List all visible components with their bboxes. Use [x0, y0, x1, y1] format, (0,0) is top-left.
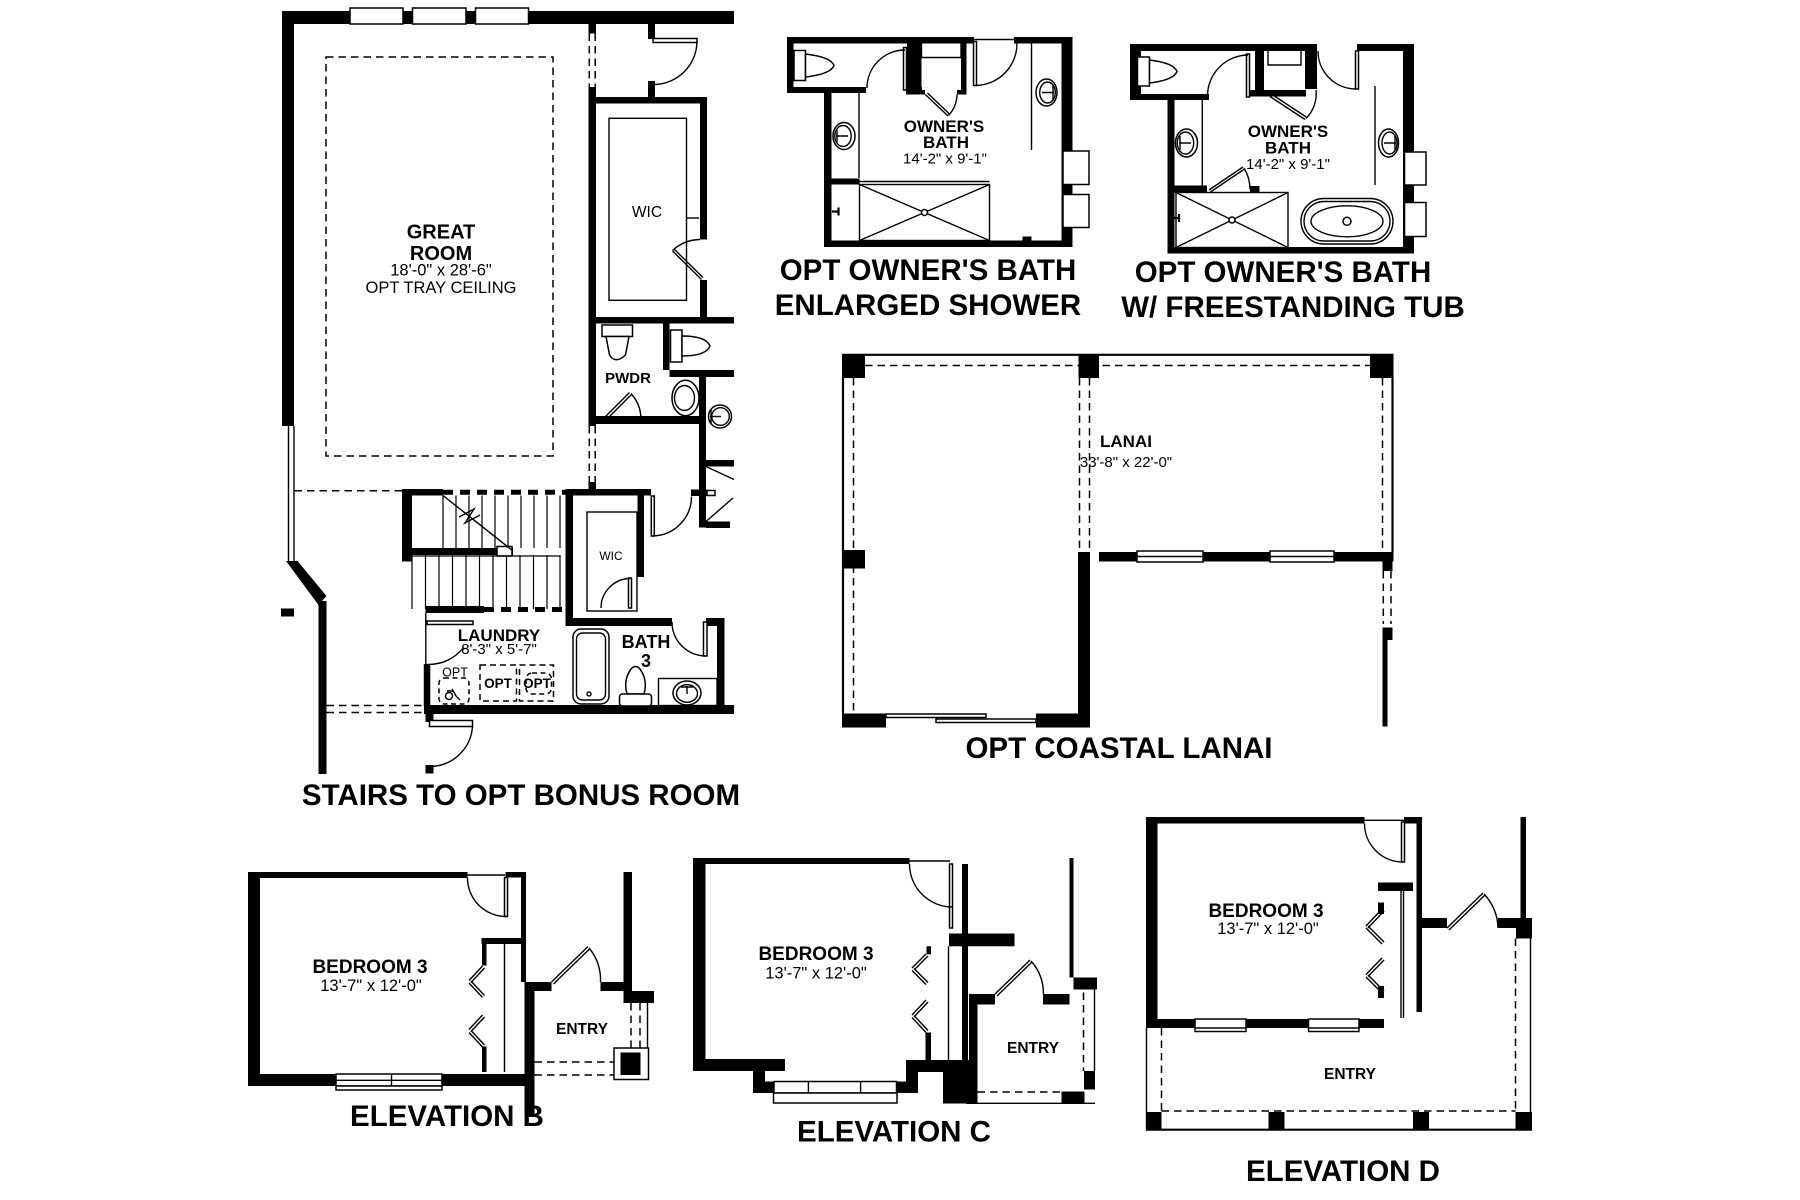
svg-text:14'-2" x 9'-1": 14'-2" x 9'-1"	[1246, 156, 1330, 173]
svg-text:13'-7" x 12'-0": 13'-7" x 12'-0"	[765, 965, 867, 983]
svg-text:WIC: WIC	[632, 204, 662, 221]
svg-text:OPT OWNER'S BATH: OPT OWNER'S BATH	[1135, 256, 1432, 289]
svg-text:ELEVATION B: ELEVATION B	[350, 1100, 544, 1133]
svg-text:GREAT: GREAT	[407, 222, 476, 244]
svg-text:LANAI: LANAI	[1100, 432, 1152, 451]
svg-text:STAIRS TO OPT BONUS ROOM: STAIRS TO OPT BONUS ROOM	[302, 779, 740, 812]
svg-text:ELEVATION C: ELEVATION C	[797, 1116, 991, 1149]
svg-text:OPT OWNER'S BATH: OPT OWNER'S BATH	[780, 254, 1077, 287]
svg-text:BEDROOM 3: BEDROOM 3	[758, 944, 873, 965]
svg-text:ENTRY: ENTRY	[556, 1021, 609, 1038]
svg-text:13'-7" x 12'-0": 13'-7" x 12'-0"	[320, 977, 422, 995]
svg-text:33'-8" x 22'-0": 33'-8" x 22'-0"	[1080, 454, 1172, 471]
svg-text:PWDR: PWDR	[605, 370, 651, 387]
svg-text:BEDROOM 3: BEDROOM 3	[312, 957, 427, 978]
svg-text:ENLARGED SHOWER: ENLARGED SHOWER	[775, 289, 1081, 322]
svg-text:OPT TRAY CEILING: OPT TRAY CEILING	[366, 279, 517, 297]
svg-text:BATH: BATH	[622, 632, 671, 652]
svg-text:BATH: BATH	[923, 133, 969, 152]
svg-text:OPT: OPT	[484, 676, 513, 691]
svg-text:18'-0" x 28'-6": 18'-0" x 28'-6"	[390, 262, 492, 280]
svg-text:8'-3" x 5'-7": 8'-3" x 5'-7"	[461, 641, 537, 658]
svg-text:OPT: OPT	[523, 676, 552, 691]
svg-text:W/ FREESTANDING TUB: W/ FREESTANDING TUB	[1121, 291, 1465, 324]
svg-text:ELEVATION D: ELEVATION D	[1246, 1155, 1440, 1188]
svg-text:WIC: WIC	[599, 549, 623, 563]
svg-text:ENTRY: ENTRY	[1007, 1040, 1060, 1057]
svg-text:BATH: BATH	[1265, 139, 1311, 158]
svg-text:OPT COASTAL LANAI: OPT COASTAL LANAI	[965, 732, 1272, 765]
svg-text:ENTRY: ENTRY	[1324, 1066, 1377, 1083]
svg-text:14'-2" x 9'-1": 14'-2" x 9'-1"	[903, 151, 987, 168]
svg-text:BEDROOM 3: BEDROOM 3	[1208, 901, 1323, 922]
svg-text:13'-7" x 12'-0": 13'-7" x 12'-0"	[1217, 920, 1319, 938]
svg-text:3: 3	[641, 651, 651, 671]
